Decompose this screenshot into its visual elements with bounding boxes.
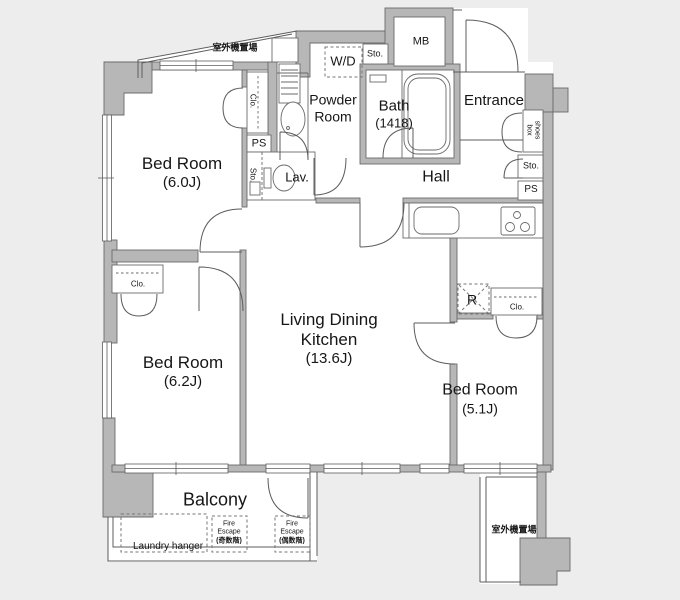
meter-box-label: MB (413, 36, 430, 49)
faucet (287, 127, 290, 130)
outdoor-unit-label-top: 室外機置場 (212, 43, 257, 54)
window-ldk-bottom-1 (324, 462, 400, 475)
window-bedroom62-left (103, 342, 112, 418)
stove (501, 207, 535, 235)
laundry-hanger-label: Laundry hanger (133, 541, 203, 553)
window-bedroom60-top (160, 59, 233, 72)
bath-label: Bath (1418) (375, 97, 413, 130)
fire-escape-odd-label: Fire Escape (奇数階) (216, 521, 242, 546)
storage-top-label: Sto. (367, 49, 383, 60)
entrance-label: Entrance (464, 92, 524, 110)
pipe-space-right-label: PS (524, 184, 537, 196)
fire-escape-even-label: Fire Escape (偶数階) (279, 521, 305, 546)
closet-bedroom62-label: Clo. (131, 279, 145, 288)
ldk-label: Living Dining Kitchen (13.6J) (280, 310, 377, 368)
shelf-box (272, 38, 298, 62)
powder-sink (281, 102, 305, 136)
bath-counter (370, 75, 386, 82)
lavatory-label: Lav. (285, 169, 309, 184)
washer-dryer-label: W/D (330, 53, 355, 68)
shoes-box-label: shoes box (524, 121, 541, 140)
outdoor-unit-label-bottom: 室外機置場 (491, 525, 536, 536)
toilet-tank (264, 168, 271, 188)
window-bedroom51-bottom (464, 462, 537, 475)
window-bedroom60-left (98, 115, 114, 241)
hall-label: Hall (422, 169, 450, 188)
pipe-space-left-label: PS (252, 138, 267, 151)
floor-plan: 室外機置場 W/D Sto. MB Powder Room Bath (1418… (0, 0, 680, 600)
bedroom51-label: Bed Room (5.1J) (442, 381, 518, 416)
lav-basin (250, 182, 260, 195)
floor-plan-drawing (0, 0, 680, 600)
storage-lav-label: Sto. (248, 168, 257, 182)
window-bedroom62-bottom (125, 462, 228, 475)
kitchen-counter (403, 203, 543, 238)
linen-shelf (279, 64, 300, 103)
balcony-label: Balcony (183, 489, 247, 510)
bedroom60-label: Bed Room (6.0J) (142, 154, 222, 192)
storage-right-label: Sto. (523, 161, 539, 172)
bedroom62-label: Bed Room (6.2J) (143, 353, 223, 391)
powder-room-label: Powder Room (309, 91, 356, 124)
refrigerator-label: R (467, 292, 477, 309)
closet-bedroom51-label: Clo. (510, 302, 524, 311)
closet-bedroom60-label: Clo. (248, 94, 257, 108)
balcony-door-sill (266, 464, 310, 473)
pillar-bottom-right (520, 538, 570, 585)
kitchen-sink (414, 207, 459, 234)
pillar-top-right (525, 74, 553, 112)
window-ldk-bottom-2 (420, 464, 449, 473)
right-wall (543, 112, 553, 470)
